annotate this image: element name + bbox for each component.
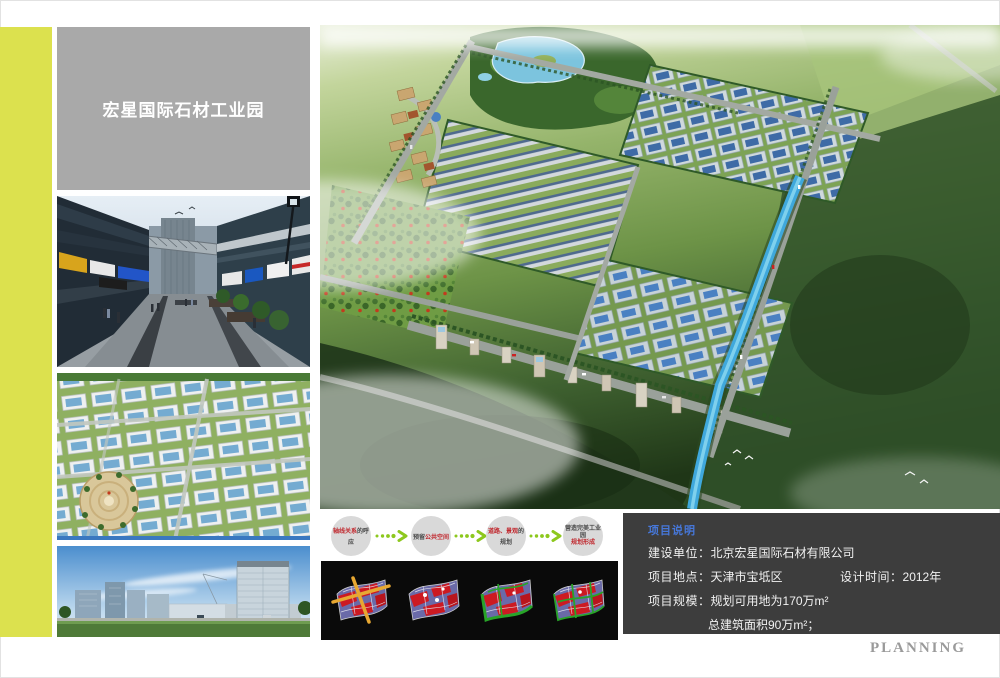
presentation-board: 宏星国际石材工业园 xyxy=(0,0,1000,678)
diagram-roads-thumbnail xyxy=(474,572,538,630)
flow-step-4: 营造完美工业园 规划形成 xyxy=(563,516,603,556)
diagram-network-thumbnail xyxy=(546,572,610,630)
street-view-image xyxy=(57,196,310,367)
project-info-panel: 项目说明 建设单位：北京宏星国际石材有限公司 项目地点：天津市宝坻区 设计时间：… xyxy=(623,513,1000,634)
info-value: 天津市宝坻区 xyxy=(711,570,783,584)
flow-step-2: 预留公共空间 xyxy=(411,516,451,556)
flow-step-3-text: 道路、景观 xyxy=(488,529,518,535)
info-value: 规划可用地为170万m² xyxy=(711,594,829,608)
flow-arrow-icon xyxy=(453,530,487,542)
info-label: 建设单位： xyxy=(648,546,711,560)
page-title: 宏星国际石材工业园 xyxy=(103,96,265,121)
master-plan-aerial-rendering xyxy=(320,25,1000,509)
flow-step-4-text: 营造完美工业园 xyxy=(563,526,603,540)
flow-step-1: 轴线关系的呼应 xyxy=(331,516,371,556)
elevation-image xyxy=(57,546,310,637)
info-row-builder: 建设单位：北京宏星国际石材有限公司 xyxy=(648,544,855,561)
aerial-grid-image xyxy=(57,373,310,540)
diagram-nodes-thumbnail xyxy=(401,572,465,630)
concept-diagrams-panel xyxy=(321,561,618,640)
flow-arrow-icon xyxy=(528,530,562,542)
info-label: 项目地点： xyxy=(648,570,711,584)
flow-step-2-text: 预留 xyxy=(413,535,425,541)
accent-bar xyxy=(0,27,52,637)
flow-arrow-icon xyxy=(374,530,408,542)
info-panel-heading: 项目说明 xyxy=(648,522,696,538)
master-plan-image xyxy=(320,25,1000,509)
info-value: 总建筑面积90万m²； xyxy=(708,618,819,632)
flow-step-3: 道路、景观的规划 xyxy=(486,516,526,556)
diagram-axes-thumbnail xyxy=(329,572,393,630)
flow-step-1-text: 轴线关系 xyxy=(333,529,357,535)
building-elevation-rendering xyxy=(57,546,310,637)
industrial-park-aerial-rendering xyxy=(57,373,310,540)
info-value: 北京宏星国际石材有限公司 xyxy=(711,546,855,560)
footer-brand: PLANNING xyxy=(870,640,966,657)
info-design-time: 设计时间：2012年 xyxy=(840,568,941,585)
street-view-rendering xyxy=(57,196,310,367)
info-row-location: 项目地点：天津市宝坻区 设计时间：2012年 xyxy=(648,568,783,585)
info-label: 项目规模： xyxy=(648,594,711,608)
title-box: 宏星国际石材工业园 xyxy=(57,27,310,190)
info-row-scale: 项目规模：规划可用地为170万m² xyxy=(648,592,829,609)
info-row-floor-area: 总建筑面积90万m²； xyxy=(648,616,819,633)
